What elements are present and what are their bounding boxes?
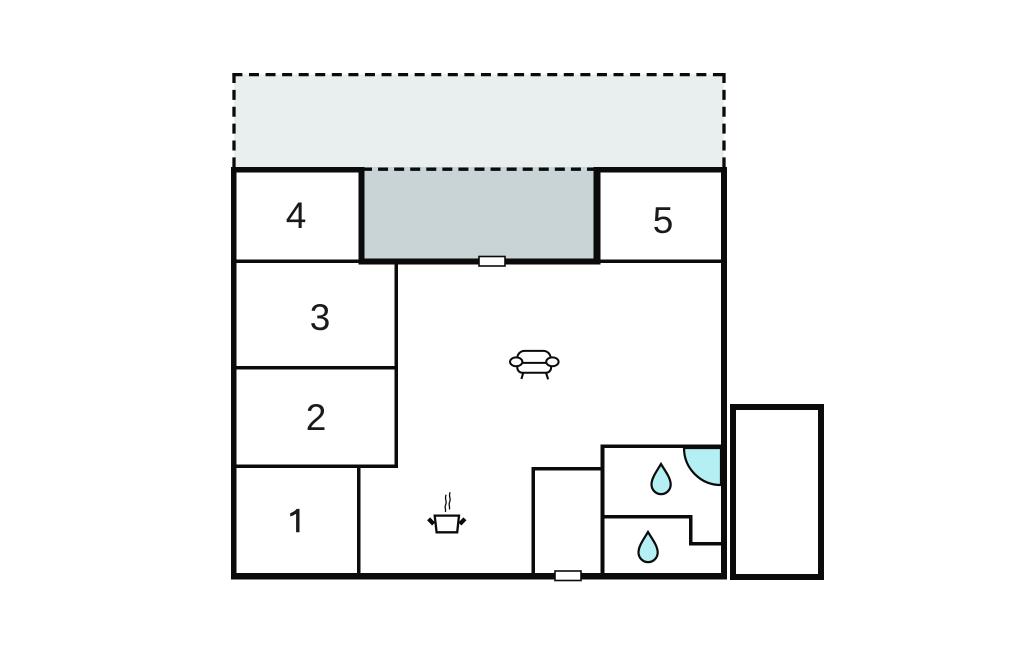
- svg-text:5: 5: [653, 200, 674, 241]
- svg-text:2: 2: [306, 397, 327, 438]
- svg-text:4: 4: [286, 195, 307, 236]
- svg-text:3: 3: [310, 297, 331, 338]
